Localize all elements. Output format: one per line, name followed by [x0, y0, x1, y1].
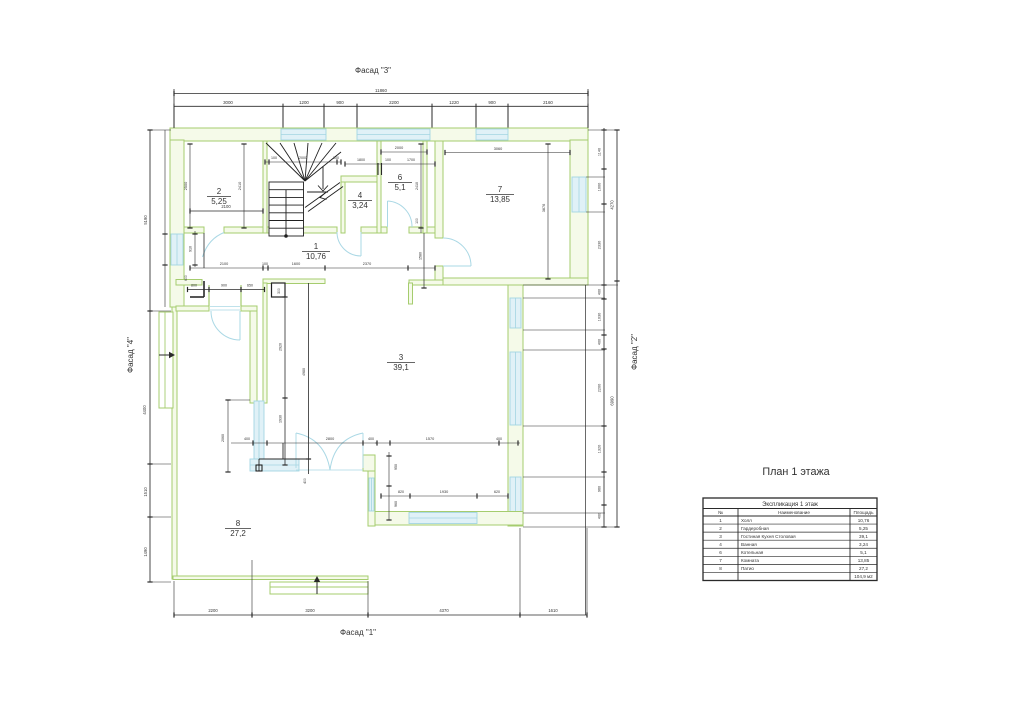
svg-text:2800: 2800 — [326, 437, 334, 441]
svg-text:Экспликация 1 этаж: Экспликация 1 этаж — [762, 502, 818, 508]
svg-text:400: 400 — [496, 437, 502, 441]
svg-text:1: 1 — [314, 242, 319, 251]
svg-text:Площадь: Площадь — [854, 510, 875, 515]
svg-text:2100: 2100 — [221, 204, 231, 209]
svg-text:Ванная: Ванная — [741, 542, 757, 547]
svg-text:900: 900 — [336, 100, 344, 105]
svg-text:104,9 м2: 104,9 м2 — [854, 574, 873, 579]
svg-text:5,1: 5,1 — [860, 550, 867, 555]
svg-text:Комната: Комната — [741, 558, 759, 563]
svg-text:3876: 3876 — [542, 204, 546, 212]
svg-text:1: 1 — [719, 518, 722, 523]
svg-text:3: 3 — [399, 353, 404, 362]
svg-text:2160: 2160 — [543, 100, 553, 105]
svg-text:4400: 4400 — [142, 405, 147, 415]
svg-text:3060: 3060 — [494, 147, 502, 151]
svg-text:27,2: 27,2 — [859, 566, 868, 571]
svg-text:400: 400 — [598, 513, 602, 519]
svg-text:1030: 1030 — [598, 313, 602, 321]
svg-text:6990: 6990 — [610, 396, 615, 406]
svg-text:1570: 1570 — [426, 437, 434, 441]
svg-text:8: 8 — [719, 566, 722, 571]
svg-text:2200: 2200 — [389, 100, 399, 105]
svg-text:100: 100 — [262, 262, 268, 266]
svg-text:1800: 1800 — [357, 158, 365, 162]
svg-text:3,24: 3,24 — [352, 201, 368, 210]
svg-text:Патио: Патио — [741, 566, 754, 571]
svg-text:5,1: 5,1 — [394, 183, 406, 192]
svg-text:960: 960 — [598, 486, 602, 492]
svg-text:2: 2 — [217, 187, 222, 196]
svg-text:39,1: 39,1 — [859, 534, 868, 539]
svg-text:960: 960 — [394, 501, 398, 507]
svg-text:1610: 1610 — [548, 608, 558, 613]
svg-text:910: 910 — [189, 246, 193, 252]
svg-text:1200: 1200 — [299, 100, 309, 105]
svg-text:Фасад "2": Фасад "2" — [630, 334, 639, 370]
svg-text:400: 400 — [368, 437, 374, 441]
svg-text:1490: 1490 — [143, 547, 148, 557]
svg-text:6: 6 — [398, 173, 403, 182]
svg-text:10,76: 10,76 — [858, 518, 870, 523]
svg-text:13,85: 13,85 — [858, 558, 870, 563]
svg-text:900: 900 — [488, 100, 496, 105]
svg-text:400: 400 — [598, 289, 602, 295]
svg-text:Гостиная Кухня Столовая: Гостиная Кухня Столовая — [741, 534, 796, 539]
svg-text:План 1 этажа: План 1 этажа — [762, 466, 829, 478]
svg-text:1930: 1930 — [279, 415, 283, 423]
svg-text:1580: 1580 — [419, 252, 423, 260]
svg-text:5,25: 5,25 — [859, 526, 868, 531]
svg-text:2330: 2330 — [598, 241, 602, 249]
svg-text:900: 900 — [221, 284, 227, 288]
svg-text:7: 7 — [719, 558, 722, 563]
svg-text:1220: 1220 — [449, 100, 459, 105]
svg-text:2410: 2410 — [238, 182, 242, 190]
svg-text:100: 100 — [333, 156, 339, 160]
svg-text:400: 400 — [598, 339, 602, 345]
svg-text:1700: 1700 — [407, 158, 415, 162]
svg-text:Фасад "3": Фасад "3" — [355, 66, 391, 75]
svg-text:1140: 1140 — [598, 148, 602, 156]
svg-text:100: 100 — [271, 156, 277, 160]
svg-text:4270: 4270 — [610, 200, 615, 210]
svg-text:2100: 2100 — [220, 262, 228, 266]
svg-text:820: 820 — [398, 490, 404, 494]
svg-text:4980: 4980 — [302, 368, 306, 376]
svg-text:2200: 2200 — [598, 384, 602, 392]
svg-text:7: 7 — [498, 185, 503, 194]
svg-text:Фасад "1": Фасад "1" — [340, 628, 376, 637]
svg-text:1510: 1510 — [143, 487, 148, 497]
svg-text:Наименование: Наименование — [778, 510, 810, 515]
svg-text:10,76: 10,76 — [306, 252, 327, 261]
svg-text:2000: 2000 — [299, 156, 307, 160]
svg-text:100: 100 — [415, 218, 419, 224]
svg-text:1600: 1600 — [292, 262, 300, 266]
svg-text:4370: 4370 — [439, 608, 449, 613]
svg-text:3000: 3000 — [223, 100, 233, 105]
svg-text:8: 8 — [236, 519, 241, 528]
svg-text:2500: 2500 — [184, 182, 188, 190]
svg-text:2060: 2060 — [221, 434, 225, 442]
svg-text:950: 950 — [394, 464, 398, 470]
svg-text:№: № — [718, 510, 723, 515]
svg-text:1320: 1320 — [598, 445, 602, 453]
svg-text:11860: 11860 — [375, 88, 387, 93]
svg-text:Фасад "4": Фасад "4" — [126, 337, 135, 373]
svg-text:13,85: 13,85 — [490, 195, 511, 204]
svg-text:2200: 2200 — [208, 608, 218, 613]
svg-text:Гардеробная: Гардеробная — [741, 526, 769, 531]
svg-text:39,1: 39,1 — [393, 363, 409, 372]
svg-text:400: 400 — [244, 437, 250, 441]
svg-text:400: 400 — [303, 478, 307, 484]
svg-text:3: 3 — [719, 534, 722, 539]
svg-text:1930: 1930 — [440, 490, 448, 494]
svg-text:4: 4 — [719, 542, 722, 547]
svg-text:27,2: 27,2 — [230, 529, 246, 538]
svg-text:3200: 3200 — [305, 608, 315, 613]
svg-text:2920: 2920 — [279, 343, 283, 351]
svg-text:2370: 2370 — [363, 262, 371, 266]
svg-text:100: 100 — [385, 158, 391, 162]
svg-text:2: 2 — [719, 526, 722, 531]
svg-text:5190: 5190 — [143, 215, 148, 225]
svg-text:3,24: 3,24 — [859, 542, 868, 547]
svg-text:2410: 2410 — [415, 182, 419, 190]
svg-text:620: 620 — [494, 490, 500, 494]
svg-text:300: 300 — [277, 288, 281, 294]
svg-text:Холл: Холл — [741, 518, 752, 523]
svg-text:600: 600 — [184, 275, 188, 281]
svg-text:6: 6 — [719, 550, 722, 555]
svg-text:800: 800 — [191, 284, 197, 288]
svg-text:Котельная: Котельная — [741, 550, 764, 555]
svg-text:2000: 2000 — [395, 146, 403, 150]
svg-text:1000: 1000 — [598, 183, 602, 191]
svg-text:650: 650 — [247, 284, 253, 288]
svg-text:4: 4 — [358, 191, 363, 200]
